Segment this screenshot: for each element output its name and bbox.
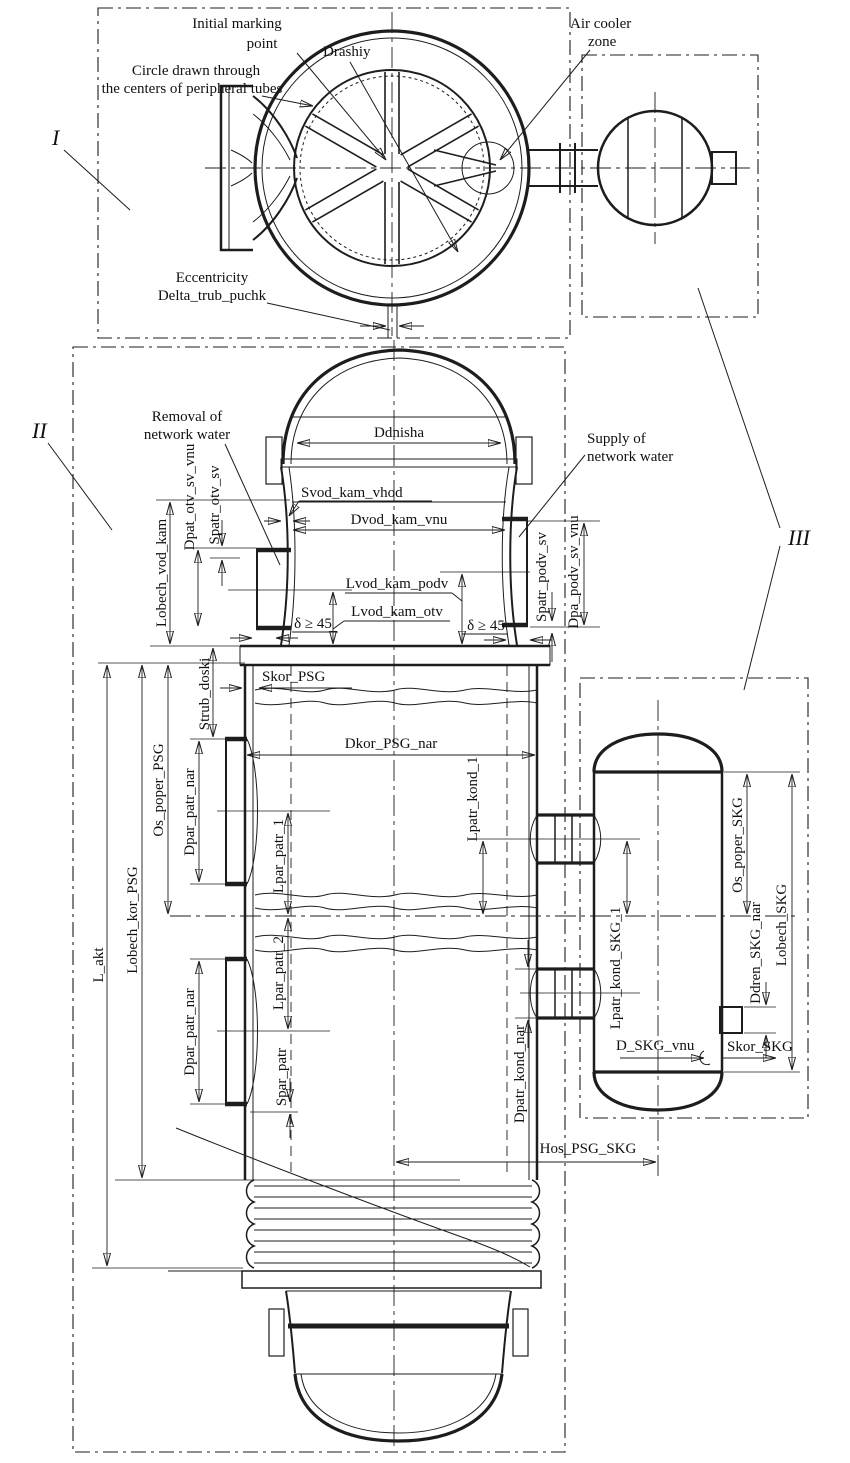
- dim-label-d-skg-vnu: D_SKG_vnu: [616, 1038, 695, 1054]
- initial-marking-label-2: point: [247, 36, 279, 52]
- dim-label-skor-skg: Skor_SKG: [727, 1039, 793, 1055]
- dim-label-lobech-skg: Lobech_SKG: [774, 884, 790, 967]
- dim-label-spar-patr: Spar_patr: [274, 1048, 290, 1106]
- bottom-chamber: [269, 1291, 528, 1441]
- tube-sheet: [240, 646, 550, 665]
- dim-label-dpatr-kond-nar: Dpatr_kond_nar: [512, 1025, 528, 1123]
- removal-label-2: network water: [144, 427, 230, 443]
- periph-circle-label-2: the centers of peripheral tubes: [102, 81, 283, 97]
- dim-label-skor-psg: Skor_PSG: [262, 669, 326, 685]
- dim-label-svod-kam-vhod: Svod_kam_vhod: [301, 485, 403, 501]
- dim-label-lpatr-kond-1: Lpatr_kond_1: [465, 757, 481, 842]
- dim-label-strub-doski: Strub_doski: [197, 658, 213, 731]
- region-iii-label: III: [787, 525, 812, 550]
- region-i-label: I: [51, 125, 61, 150]
- initial-marking-label-1: Initial marking: [192, 16, 282, 32]
- dim-label-dpar-patr-nar-lower: Dpar_patr_nar: [182, 988, 198, 1075]
- region-ii-label: II: [31, 418, 48, 443]
- weld-label-left: δ ≥ 45: [294, 616, 332, 632]
- dim-label-dvod-kam-vnu: Dvod_kam_vnu: [351, 512, 448, 528]
- dim-label-ddren-skg-nar: Ddren_SKG_nar: [748, 902, 764, 1004]
- eccentricity-label-1: Eccentricity: [176, 270, 249, 286]
- dim-label-lobech-kor-psg: Lobech_kor_PSG: [125, 866, 141, 974]
- region-ii-box: [73, 347, 565, 1452]
- dim-label-os-poper-psg: Os_poper_PSG: [151, 743, 167, 837]
- dimensions: Ddnisha Svod_kam_vhod Dvod_kam_vnu Lobec…: [91, 409, 800, 1268]
- dim-label-lobech-vod-kam: Lobech_vod_kam: [154, 519, 170, 628]
- supply-label-1: Supply of: [587, 431, 646, 447]
- dim-label-dpa-podv-sv-vnu: Dpa_podv_sv_vnu: [566, 515, 582, 629]
- dim-label-l-akt: L_akt: [91, 947, 107, 983]
- dim-label-ddnisha: Ddnisha: [374, 425, 424, 441]
- bellows: [247, 1180, 540, 1268]
- section-i-annotations: Initial marking point Drashiy Circle dra…: [102, 16, 632, 304]
- section-i: Initial marking point Drashiy Circle dra…: [102, 12, 750, 338]
- dim-label-dpar-patr-nar-upper: Dpar_patr_nar: [182, 768, 198, 855]
- dim-label-spatr-otv-sv: Spatr_otv_sv: [207, 465, 223, 545]
- dim-label-dkor-psg-nar: Dkor_PSG_nar: [345, 736, 438, 752]
- dim-label-lvod-kam-podv: Lvod_kam_podv: [346, 576, 449, 592]
- weld-label-right: δ ≥ 45: [467, 618, 505, 634]
- dim-label-hos-psg-skg: Hos_PSG_SKG: [540, 1141, 637, 1157]
- dim-label-os-poper-skg: Os_poper_SKG: [730, 797, 746, 893]
- drawing-page: I II III: [0, 0, 850, 1463]
- dome-flange-pad-right: [516, 437, 532, 484]
- dim-label-lpar-patr-2: Lpar_patr_2: [271, 936, 287, 1010]
- air-cooler-label-2: zone: [588, 34, 617, 50]
- upper-dome: [266, 350, 532, 484]
- supply-label-2: network water: [587, 449, 673, 465]
- periph-circle-label-1: Circle drawn through: [132, 63, 261, 79]
- dim-label-dpat-otv-sv-vnu: Dpat_otv_sv_vnu: [182, 443, 198, 550]
- skg-drain-stub: [720, 1007, 742, 1033]
- air-cooler-label-1: Air cooler: [570, 16, 631, 32]
- dim-label-spatr-podv-sv: Spatr_podv_sv: [534, 532, 550, 623]
- drashiy-label: Drashiy: [323, 44, 371, 60]
- dim-label-lvod-kam-otv: Lvod_kam_otv: [351, 604, 443, 620]
- dim-label-lpar-patr-1: Lpar_patr_1: [271, 819, 287, 893]
- dim-label-lpatr-kond-skg-1: Lpatr_kond_SKG_1: [608, 907, 624, 1030]
- engineering-drawing: I II III: [0, 0, 850, 1463]
- bottom-flange: [168, 1271, 541, 1288]
- air-cooler-box: [582, 55, 758, 317]
- dome-flange-pad-left: [266, 437, 282, 484]
- eccentricity-label-2: Delta_trub_puchk: [158, 288, 267, 304]
- eccentricity-indicator: [267, 303, 424, 338]
- section-ii: [168, 340, 800, 1450]
- region-boxes: [73, 8, 808, 1452]
- removal-label-1: Removal of: [152, 409, 222, 425]
